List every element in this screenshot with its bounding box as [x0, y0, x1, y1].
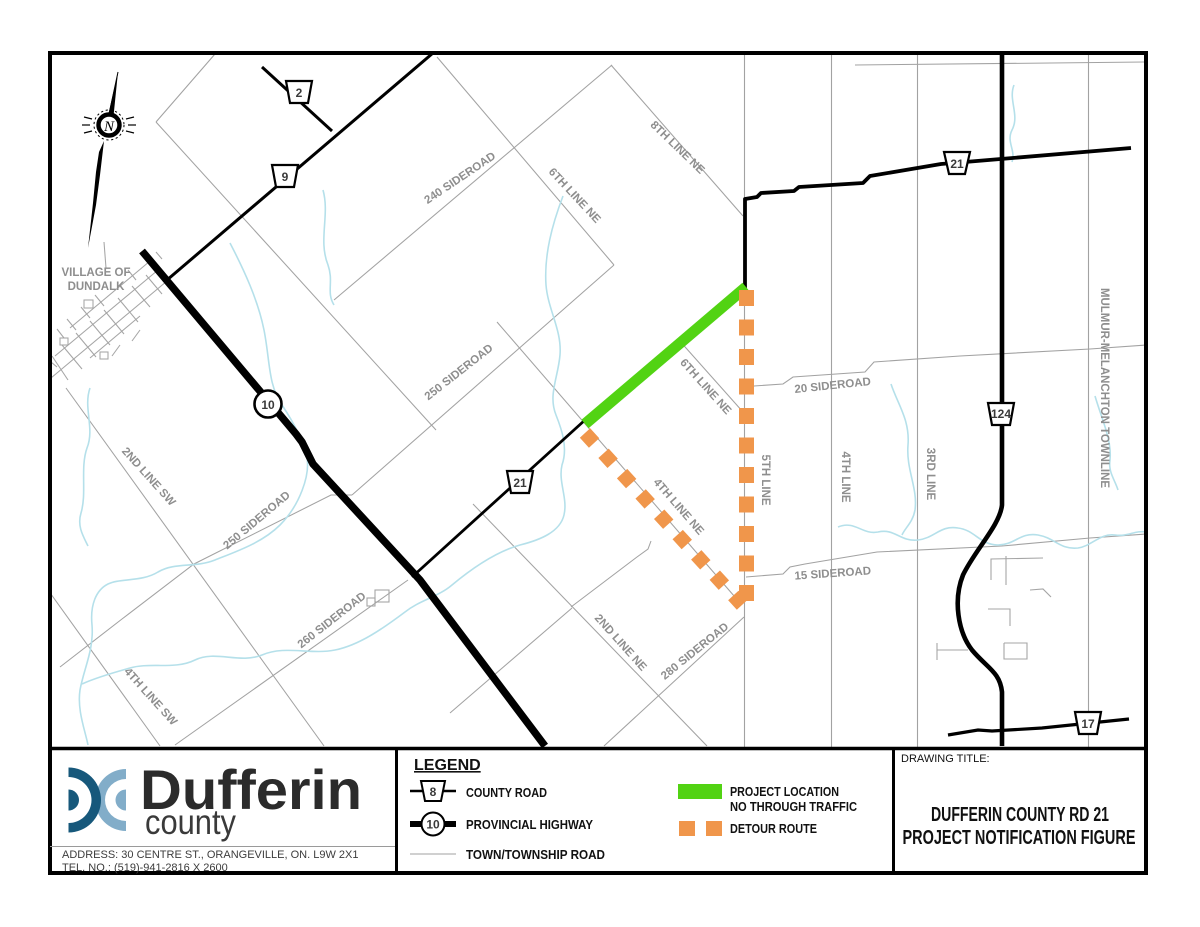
svg-text:17: 17 — [1081, 717, 1095, 731]
svg-text:PROJECT NOTIFICATION FIGURE: PROJECT NOTIFICATION FIGURE — [903, 827, 1136, 849]
svg-text:LEGEND: LEGEND — [414, 757, 481, 774]
svg-text:DUNDALK: DUNDALK — [68, 281, 126, 293]
svg-text:9: 9 — [282, 170, 289, 184]
svg-text:TOWN/TOWNSHIP ROAD: TOWN/TOWNSHIP ROAD — [466, 847, 605, 862]
svg-text:DETOUR ROUTE: DETOUR ROUTE — [730, 821, 817, 836]
svg-text:VILLAGE OF: VILLAGE OF — [62, 267, 131, 279]
svg-text:PROVINCIAL HIGHWAY: PROVINCIAL HIGHWAY — [466, 817, 593, 832]
svg-text:124: 124 — [991, 407, 1011, 421]
svg-text:COUNTY ROAD: COUNTY ROAD — [466, 785, 547, 800]
svg-text:2: 2 — [296, 86, 303, 100]
svg-text:ADDRESS: 30 CENTRE ST., ORANGE: ADDRESS: 30 CENTRE ST., ORANGEVILLE, ON.… — [62, 849, 358, 861]
svg-text:10: 10 — [261, 398, 275, 412]
svg-text:NO THROUGH TRAFFIC: NO THROUGH TRAFFIC — [730, 799, 858, 814]
svg-text:4TH LINE: 4TH LINE — [839, 451, 851, 502]
svg-text:county: county — [145, 803, 236, 842]
svg-text:MULMUR-MELANCHTON TOWNLINE: MULMUR-MELANCHTON TOWNLINE — [1098, 288, 1110, 488]
svg-text:21: 21 — [513, 476, 527, 490]
svg-text:21: 21 — [950, 157, 964, 171]
svg-text:3RD LINE: 3RD LINE — [924, 448, 936, 501]
svg-text:8: 8 — [430, 785, 437, 799]
svg-text:10: 10 — [426, 818, 440, 832]
svg-text:PROJECT LOCATION: PROJECT LOCATION — [730, 784, 839, 799]
svg-text:DRAWING TITLE:: DRAWING TITLE: — [901, 753, 990, 765]
svg-text:TEL. NO.: (519)-941-2816 X 260: TEL. NO.: (519)-941-2816 X 2600 — [62, 862, 228, 874]
svg-text:5TH LINE: 5TH LINE — [759, 454, 771, 505]
svg-text:DUFFERIN COUNTY RD 21: DUFFERIN COUNTY RD 21 — [931, 804, 1109, 826]
svg-text:N: N — [103, 119, 115, 135]
